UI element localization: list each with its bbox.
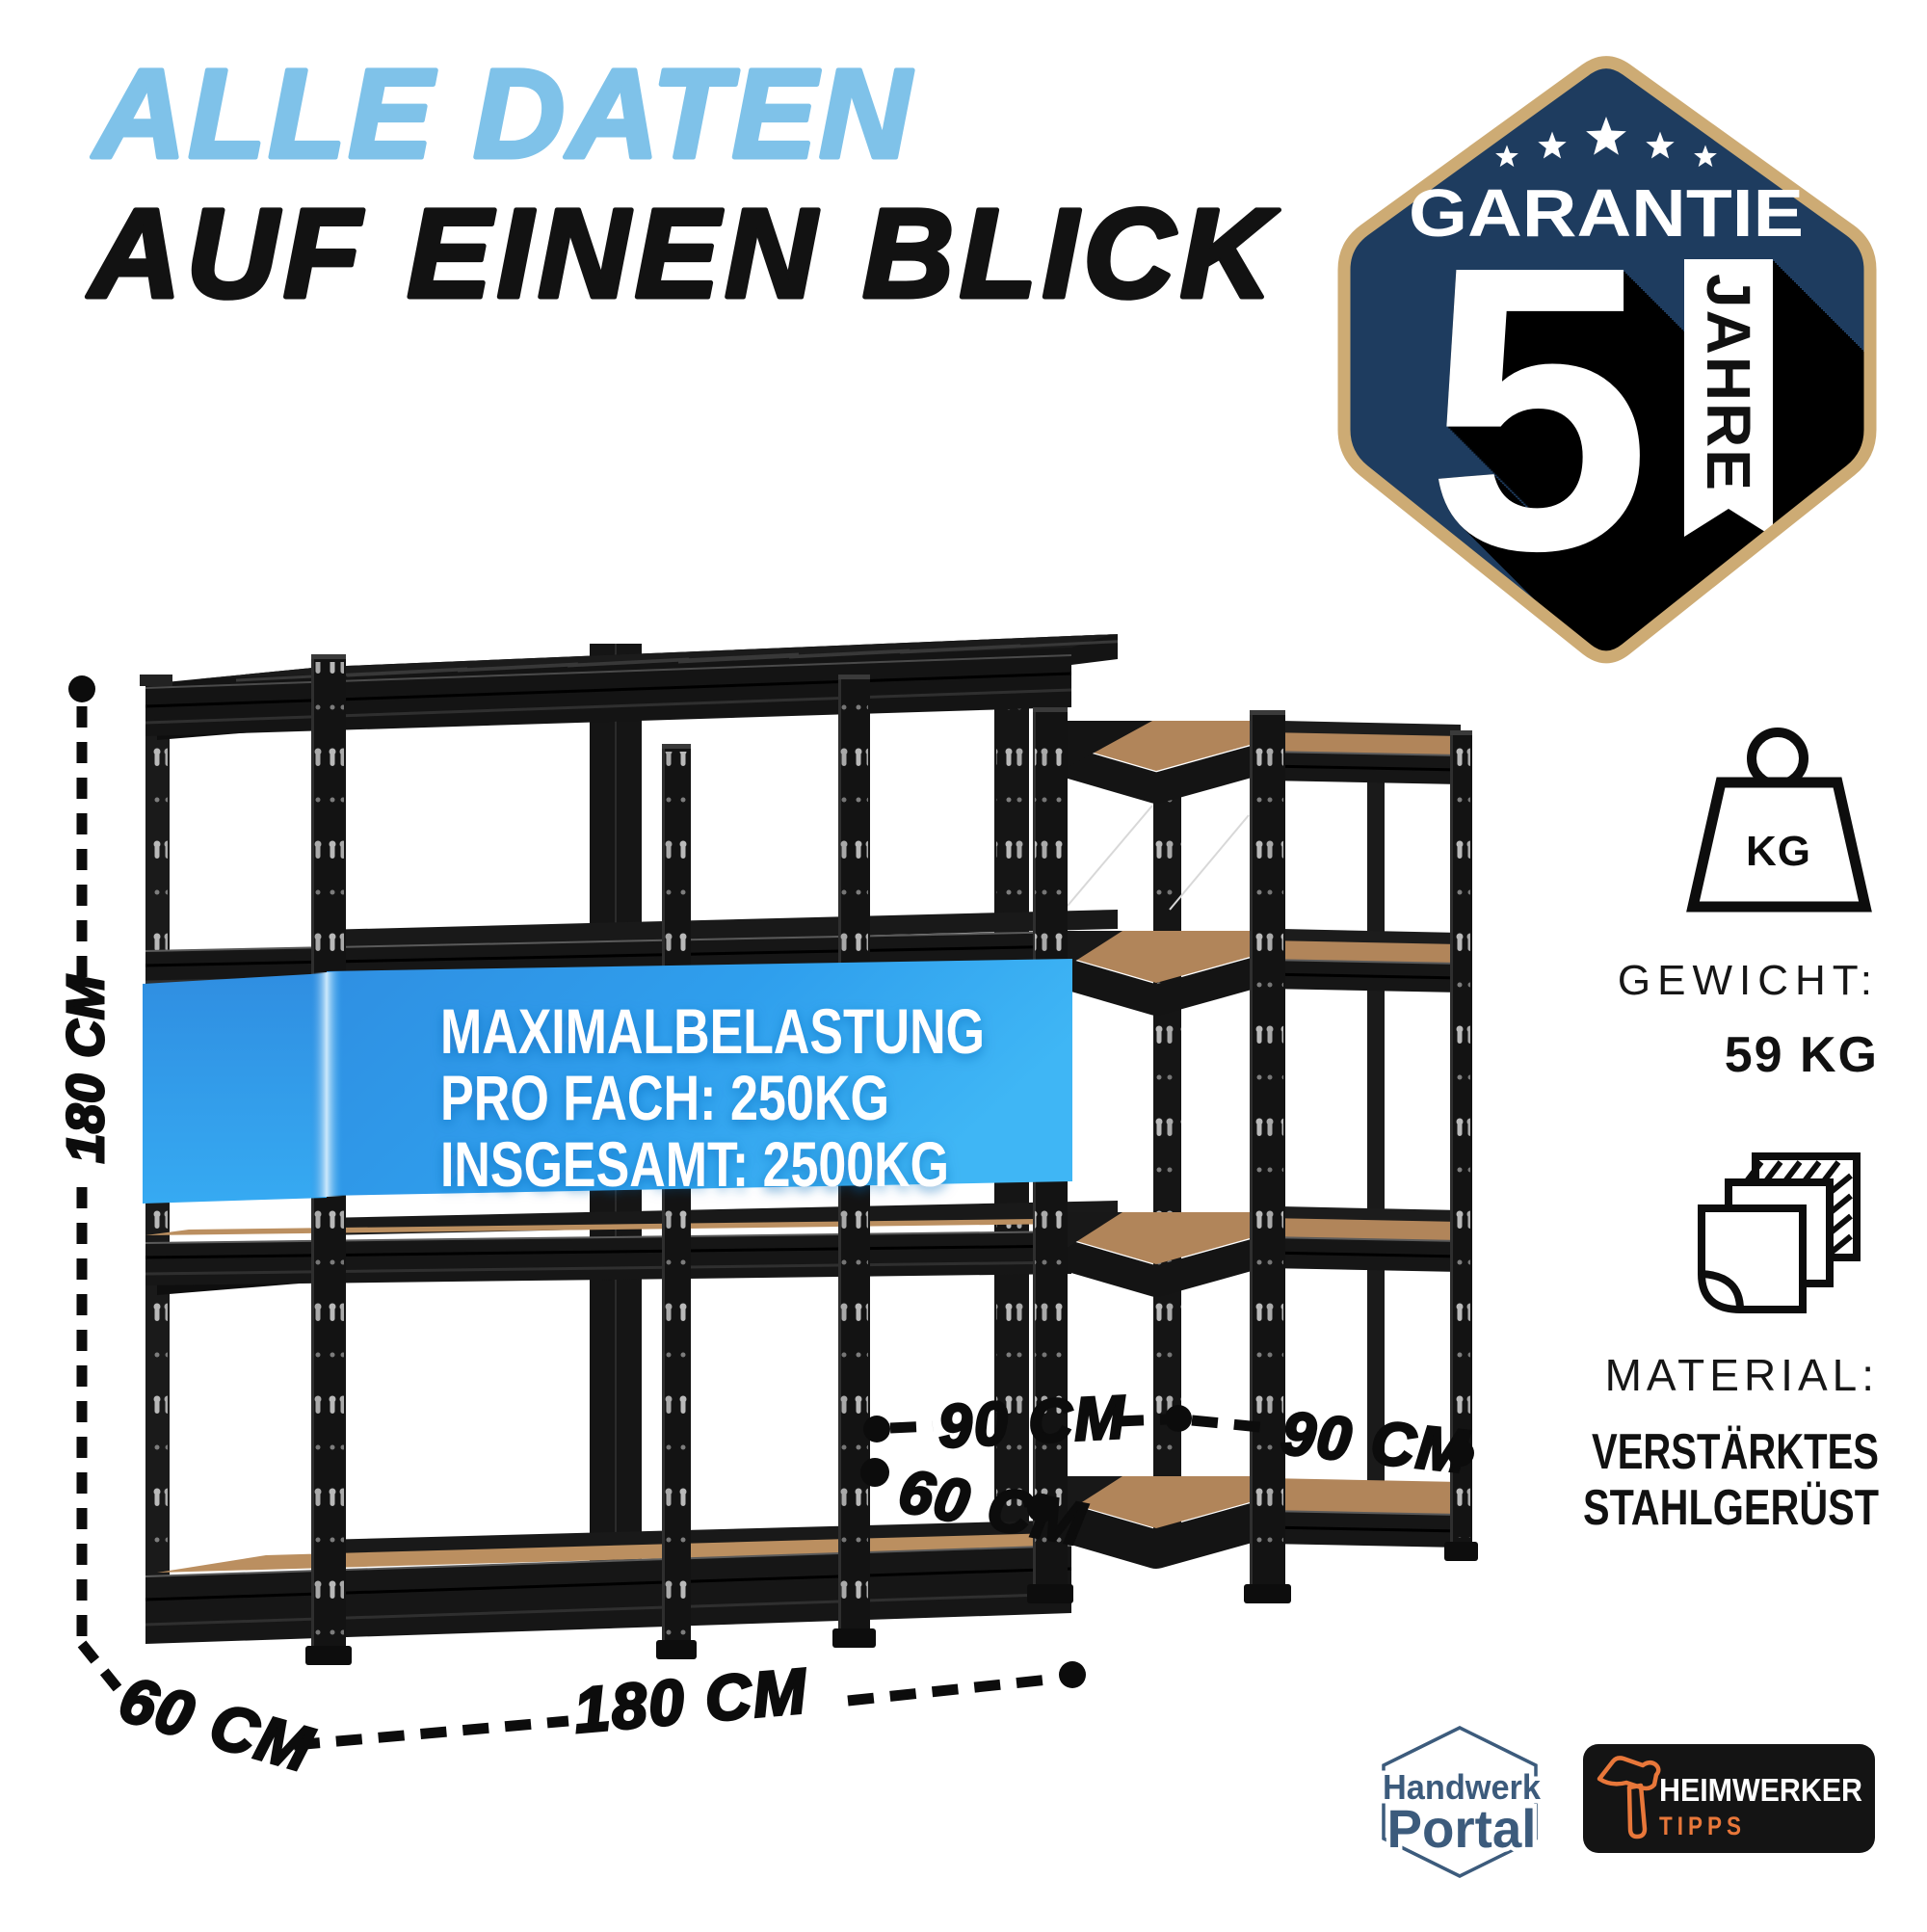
svg-text:180 CM: 180 CM — [57, 975, 115, 1163]
svg-text:90 CM: 90 CM — [937, 1384, 1128, 1461]
svg-text:MAXIMALBELASTUNG: MAXIMALBELASTUNG — [440, 995, 985, 1067]
svg-text:JAHRE: JAHRE — [1694, 274, 1763, 492]
svg-text:GARANTIE: GARANTIE — [1409, 175, 1804, 251]
svg-text:VERSTÄRKTES: VERSTÄRKTES — [1592, 1424, 1879, 1480]
svg-text:ALLE DATEN: ALLE DATEN — [92, 42, 913, 184]
svg-text:HEIMWERKER: HEIMWERKER — [1659, 1772, 1862, 1808]
svg-text:59 KG: 59 KG — [1725, 1027, 1879, 1083]
svg-text:AUF EINEN BLICK: AUF EINEN BLICK — [87, 182, 1280, 324]
svg-text:KG: KG — [1746, 828, 1811, 875]
svg-text:GEWICHT:: GEWICHT: — [1618, 957, 1879, 1004]
svg-text:INSGESAMT: 2500KG: INSGESAMT: 2500KG — [440, 1128, 949, 1200]
svg-text:MATERIAL:: MATERIAL: — [1605, 1350, 1879, 1400]
svg-text:Portal: Portal — [1387, 1798, 1537, 1859]
svg-text:TIPPS: TIPPS — [1659, 1812, 1746, 1840]
svg-text:PRO FACH: 250KG: PRO FACH: 250KG — [440, 1062, 889, 1133]
svg-text:STAHLGERÜST: STAHLGERÜST — [1583, 1480, 1879, 1536]
